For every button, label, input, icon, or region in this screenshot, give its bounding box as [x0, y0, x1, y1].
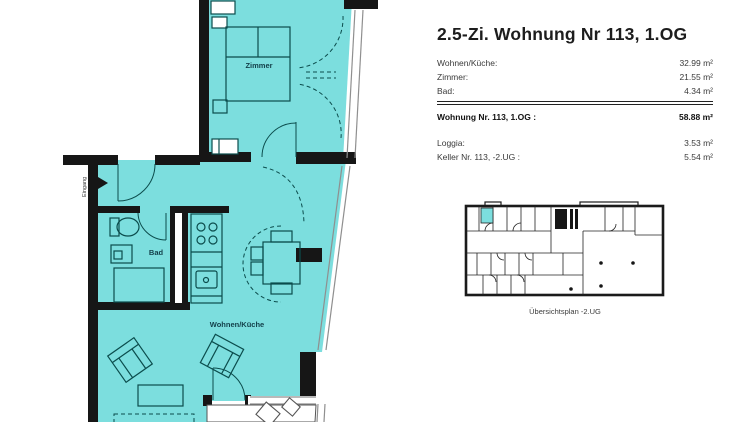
info-panel: 2.5-Zi. Wohnung Nr 113, 1.OG Wohnen/Küch… [437, 0, 713, 164]
nightstand-top [212, 17, 227, 28]
overview-plan: Übersichtsplan -2.UG [463, 201, 667, 316]
table-row: Wohnen/Küche: 32.99 m² [437, 56, 713, 70]
bathroom-label: Bad [149, 248, 164, 257]
table-row: Keller Nr. 113, -2.UG : 5.54 m² [437, 150, 713, 164]
table-divider [437, 101, 713, 105]
shaft [175, 213, 182, 303]
row-value: 5.54 m² [684, 150, 713, 164]
row-value: 4.34 m² [684, 84, 713, 98]
row-value: 32.99 m² [679, 56, 713, 70]
closet [212, 139, 238, 154]
row-label: Loggia: [437, 136, 465, 150]
bedroom-label: Zimmer [245, 61, 272, 70]
table-extras: Loggia: 3.53 m² Keller Nr. 113, -2.UG : … [437, 136, 713, 164]
area-table: Wohnen/Küche: 32.99 m² Zimmer: 21.55 m² … [437, 56, 713, 164]
keller-highlight [481, 208, 493, 223]
total-label: Wohnung Nr. 113, 1.OG : [437, 110, 536, 124]
table-total-row: Wohnung Nr. 113, 1.OG : 58.88 m² [437, 110, 713, 124]
living-kitchen-label: Wohnen/Küche [210, 320, 264, 329]
overview-caption: Übersichtsplan -2.UG [463, 307, 667, 316]
page-title: 2.5-Zi. Wohnung Nr 113, 1.OG [437, 24, 713, 45]
apartment-floorplan: Zimmer Bad Wohnen/Küche Eingang [0, 0, 380, 422]
total-value: 58.88 m² [679, 110, 713, 124]
row-label: Bad: [437, 84, 455, 98]
wardrobe [211, 1, 235, 14]
row-label: Keller Nr. 113, -2.UG : [437, 150, 520, 164]
table-row: Zimmer: 21.55 m² [437, 70, 713, 84]
row-value: 3.53 m² [684, 136, 713, 150]
row-value: 21.55 m² [679, 70, 713, 84]
table-row: Bad: 4.34 m² [437, 84, 713, 98]
table-row: Loggia: 3.53 m² [437, 136, 713, 150]
overview-map [463, 201, 667, 299]
row-label: Wohnen/Küche: [437, 56, 497, 70]
entrance-label: Eingang [82, 177, 88, 197]
row-label: Zimmer: [437, 70, 468, 84]
